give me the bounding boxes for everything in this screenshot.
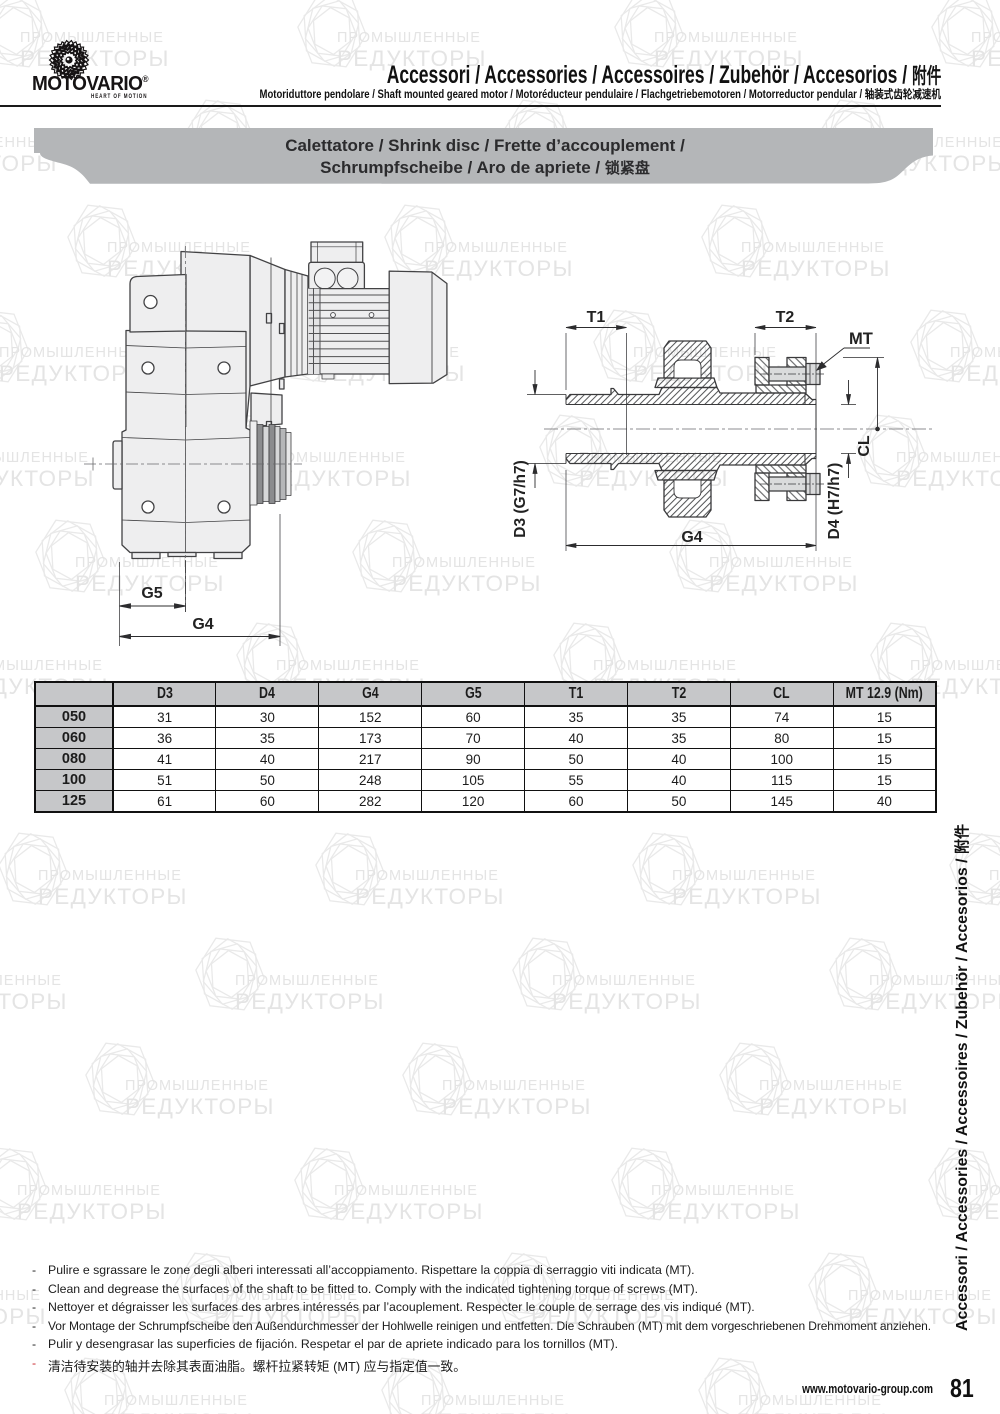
svg-text:MT: MT: [849, 330, 873, 348]
svg-text:T1: T1: [587, 309, 606, 326]
svg-text:D3 (G7/h7): D3 (G7/h7): [512, 460, 529, 538]
svg-text:D4 (H7/h7): D4 (H7/h7): [826, 463, 843, 540]
svg-text:CL: CL: [856, 435, 873, 457]
svg-text:T2: T2: [776, 309, 795, 326]
svg-text:G4: G4: [681, 529, 702, 546]
